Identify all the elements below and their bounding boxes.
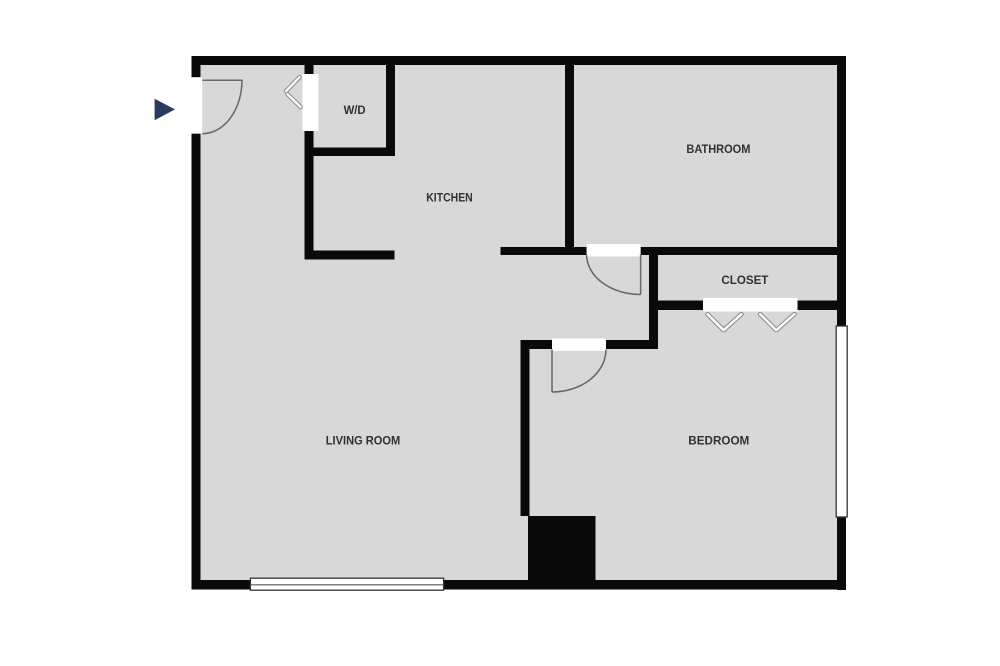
svg-text:BEDROOM: BEDROOM (688, 434, 749, 448)
svg-text:KITCHEN: KITCHEN (426, 191, 473, 205)
svg-text:LIVING ROOM: LIVING ROOM (326, 433, 401, 447)
svg-text:CLOSET: CLOSET (721, 273, 769, 287)
svg-text:W/D: W/D (344, 103, 366, 117)
svg-text:BATHROOM: BATHROOM (686, 142, 750, 156)
